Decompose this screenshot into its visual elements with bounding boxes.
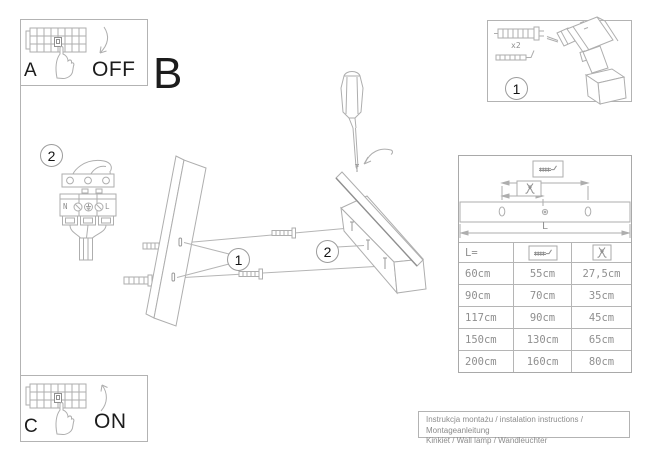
terminal-label-neutral: N bbox=[63, 203, 68, 211]
switch-off-arrow-icon bbox=[100, 27, 107, 53]
panel-a-state: OFF bbox=[92, 59, 136, 80]
screw-icon bbox=[239, 269, 263, 279]
step1-number-badge: 1 bbox=[505, 77, 528, 100]
instruction-sheet: L= 60cm 55cm 27,5cm 90cm 70cm 35cm 117cm bbox=[0, 0, 650, 460]
screwdriver-icon bbox=[341, 72, 363, 171]
plug-quantity: x2 bbox=[511, 42, 521, 50]
panel-c-label: C bbox=[24, 417, 38, 436]
switch-on-arrow-icon bbox=[101, 385, 108, 411]
screw-icon bbox=[496, 51, 534, 61]
drill-icon bbox=[547, 17, 626, 104]
step1-number: 1 bbox=[513, 81, 521, 97]
wall-plug-icon bbox=[494, 27, 544, 40]
lamp-body bbox=[341, 196, 426, 293]
assembly-step2-ref: 2 bbox=[324, 244, 332, 260]
assembly-step1-badge: 1 bbox=[227, 248, 250, 271]
assembly-step2-badge: 2 bbox=[316, 240, 339, 263]
terminal-label-live: L bbox=[105, 203, 110, 211]
assembly-step1-ref: 1 bbox=[235, 252, 243, 268]
screw-icon bbox=[272, 228, 296, 238]
breaker-panel-icon bbox=[26, 384, 86, 408]
rotation-arrow-icon bbox=[364, 149, 393, 164]
panel-c-state: ON bbox=[94, 411, 127, 432]
panel-a-label: A bbox=[24, 61, 37, 80]
length-dimension-label: L bbox=[539, 222, 551, 232]
step2-number: 2 bbox=[48, 148, 56, 164]
mounting-plate bbox=[146, 156, 206, 326]
breaker-panel-icon bbox=[26, 28, 86, 52]
panel-b-label: B bbox=[153, 52, 182, 96]
step2-number-badge: 2 bbox=[40, 144, 63, 167]
